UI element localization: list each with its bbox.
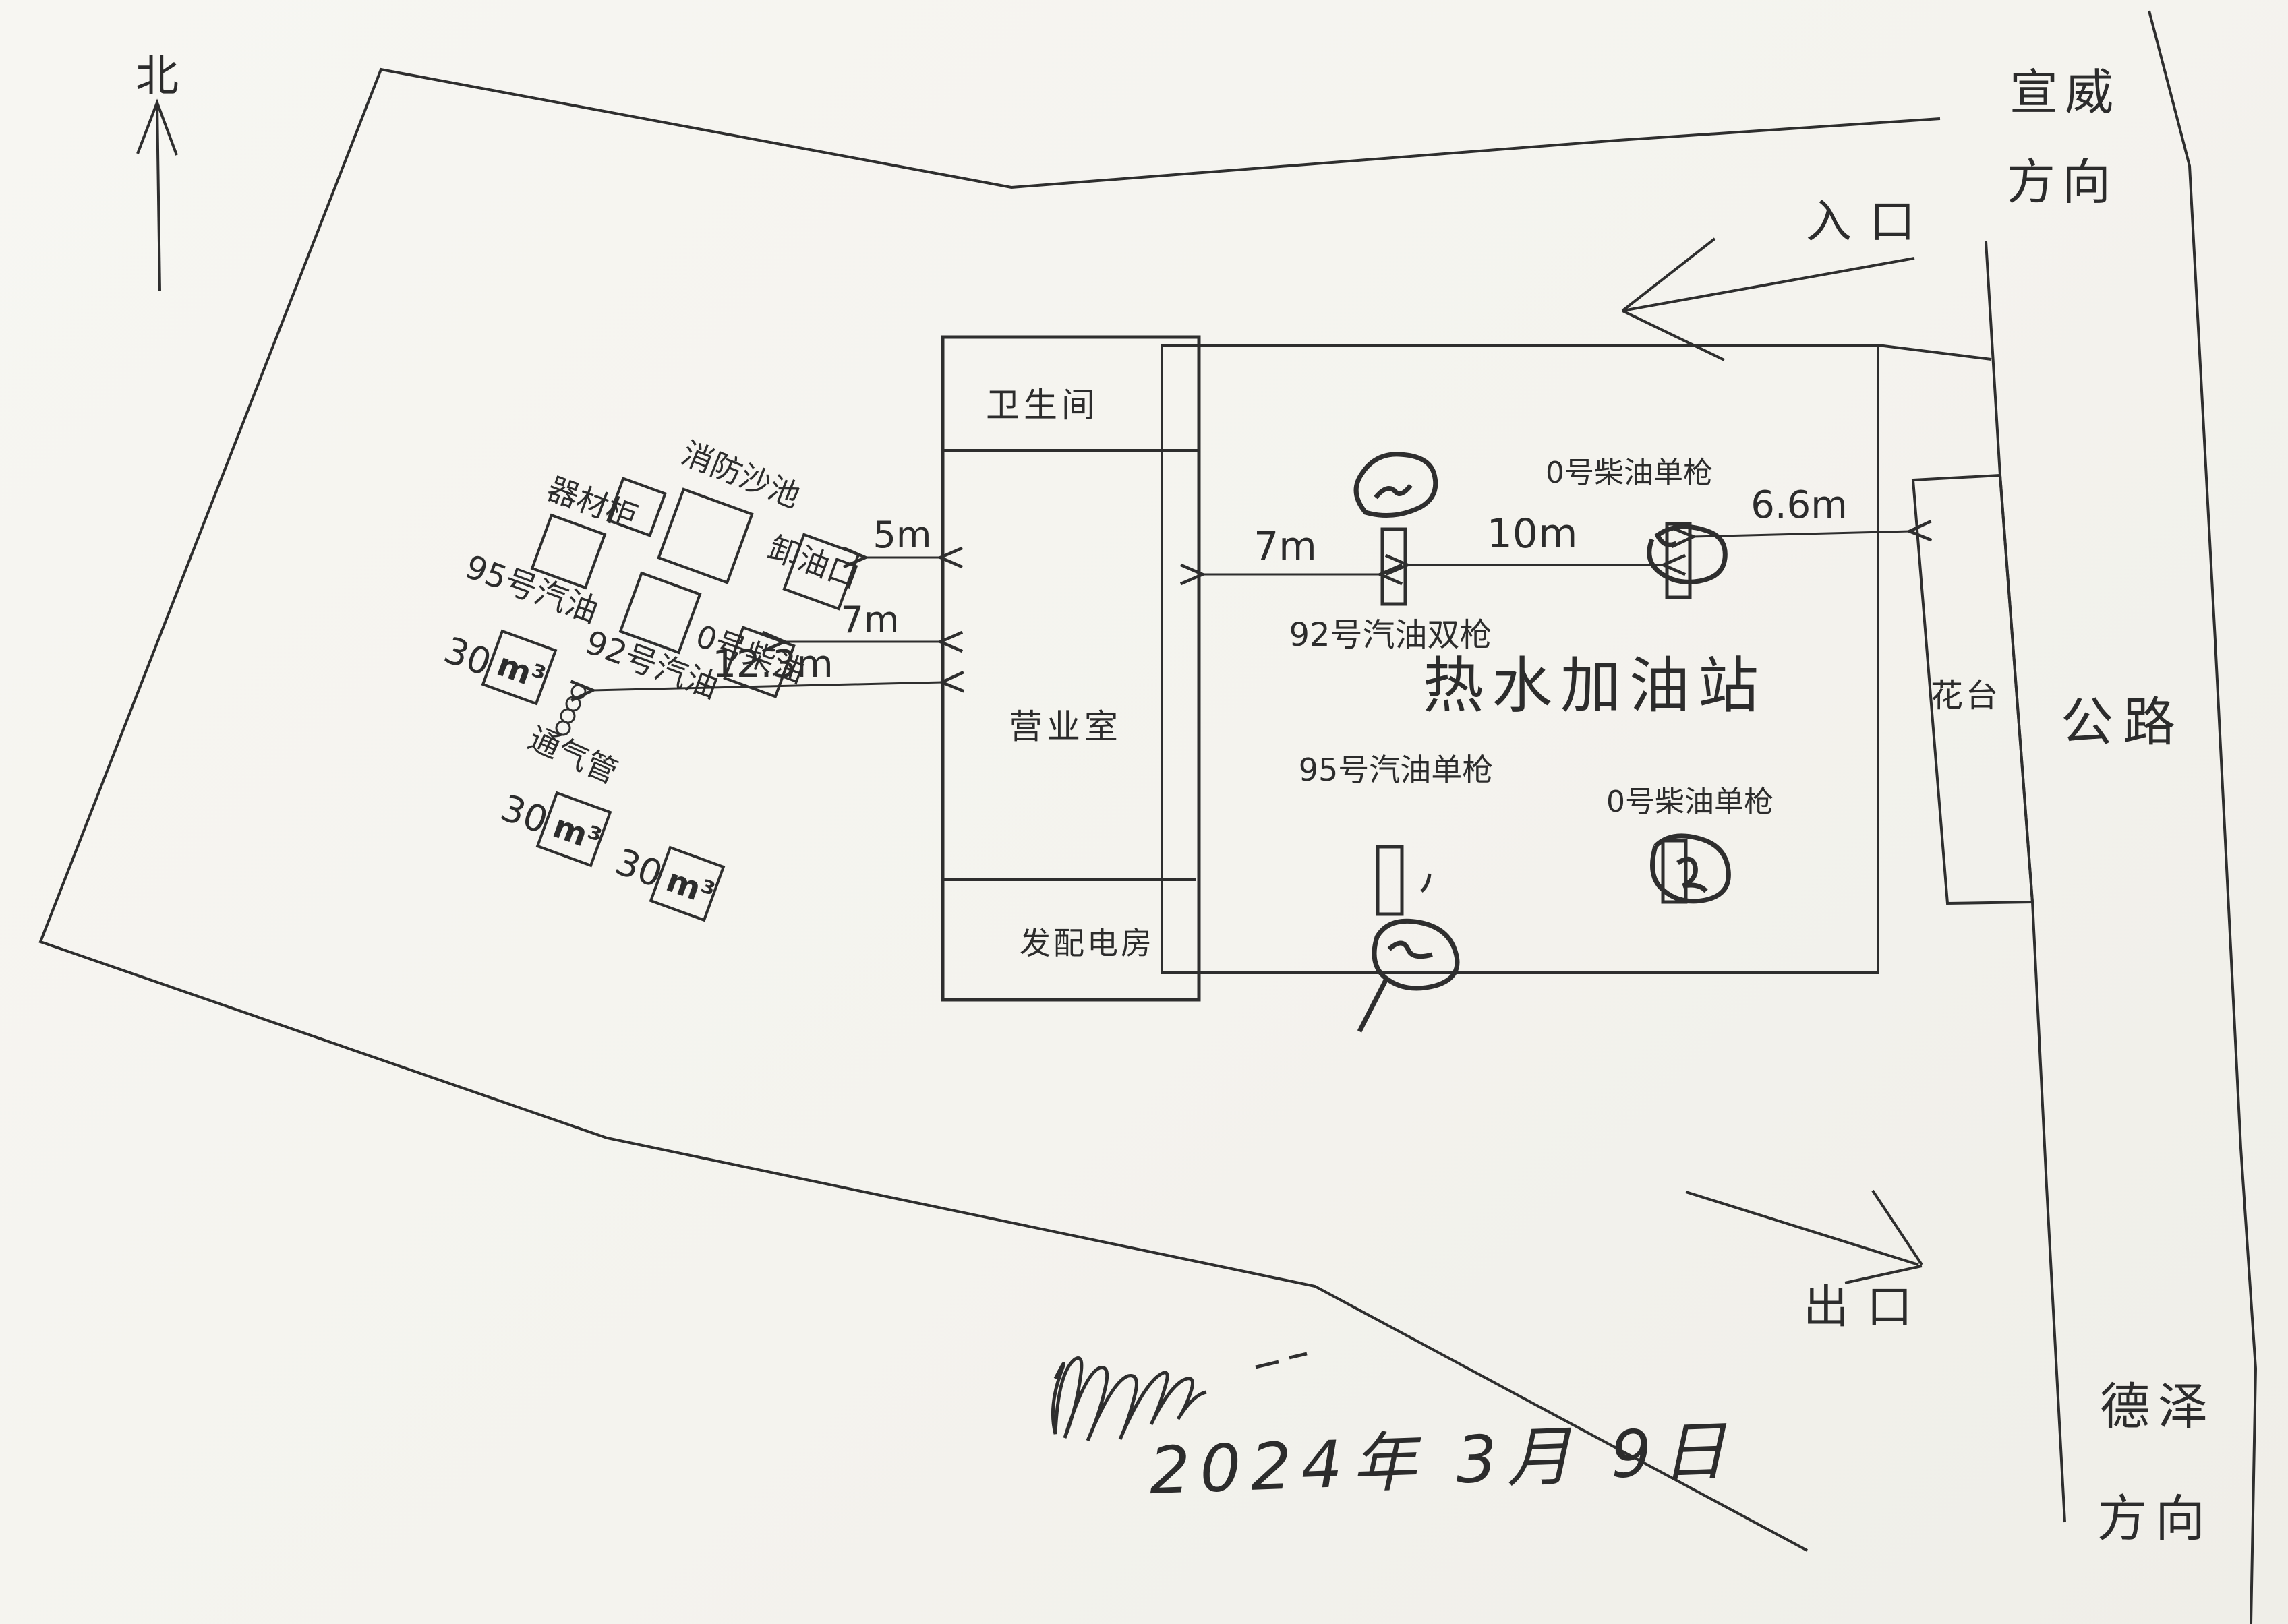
north-arrow-shaft bbox=[157, 102, 160, 291]
gasoline-95-label: 95号汽油 bbox=[461, 548, 604, 631]
station-title: 热水加油站 bbox=[1423, 651, 1767, 721]
vent-pipe-label: 通气管 bbox=[523, 719, 623, 790]
direction-deze: 德泽 方向 bbox=[2097, 1378, 2216, 1548]
tank-30m3-3: 30 m³ bbox=[610, 840, 723, 920]
deze-label: 德泽 bbox=[2100, 1378, 2216, 1436]
xuanwei-direction-label: 方向 bbox=[2007, 154, 2117, 210]
tank-1-num: 30 bbox=[438, 628, 496, 684]
date-text: 2024年 3月 9日 bbox=[1148, 1413, 1736, 1509]
entrance-arrow-barb-lower bbox=[1622, 311, 1724, 360]
exit-arrow-shaft bbox=[1686, 1192, 1918, 1265]
dispenser-95-label: 95号汽油单枪 bbox=[1299, 752, 1494, 788]
tank-2-num: 30 bbox=[495, 786, 553, 842]
dim-label-6-6m: 6.6m bbox=[1751, 483, 1848, 527]
toilet-label: 卫生间 bbox=[986, 386, 1099, 425]
dispenser-3-body bbox=[1378, 847, 1402, 914]
dimension-5m: 5m bbox=[864, 514, 941, 558]
entrance-arrow-barb-upper bbox=[1622, 239, 1715, 311]
flower-bed-label: 花台 bbox=[1931, 677, 2001, 715]
island-scribble-1 bbox=[1356, 454, 1436, 516]
tank-30m3-2: 30 m³ bbox=[495, 786, 610, 865]
site-plan-sketch: 公路 北 宣威 方向 入口 卫生间 营业室 发配电房 热水加油站 花台 bbox=[0, 0, 2288, 1624]
direction-xuanwei: 宣威 方向 bbox=[2007, 64, 2120, 210]
entrance-label: 入口 bbox=[1806, 196, 1933, 249]
dim-label-7m-right: 7m bbox=[1254, 523, 1316, 569]
island-scribble-2 bbox=[1649, 527, 1726, 582]
tank-30m3-1: 30 m³ bbox=[438, 628, 555, 703]
dispenser-0-diesel-bottom: 0号柴油单枪 bbox=[1606, 785, 1773, 902]
north-label: 北 bbox=[136, 52, 179, 102]
dispenser-2-body bbox=[1667, 524, 1690, 597]
dispenser-92-double: 92号汽油双枪 bbox=[1289, 454, 1492, 654]
tank-3-num: 30 bbox=[610, 840, 668, 896]
dispenser-92-label: 92号汽油双枪 bbox=[1289, 616, 1492, 654]
xuanwei-label: 宣威 bbox=[2010, 64, 2120, 121]
dim-label-5m: 5m bbox=[873, 514, 932, 556]
dispenser-95-single: 95号汽油单枪 bbox=[1299, 752, 1494, 1031]
flower-bed: 花台 bbox=[1913, 475, 2032, 903]
exit-label: 出口 bbox=[1803, 1281, 1930, 1334]
dimension-7m-right: 7m bbox=[1202, 523, 1381, 574]
entrance-arrow-shaft bbox=[1622, 258, 1914, 311]
signature-dashes bbox=[1256, 1354, 1307, 1367]
signature-scribble bbox=[1053, 1358, 1206, 1441]
canopy: 热水加油站 bbox=[1162, 345, 1991, 973]
office-label: 营业室 bbox=[1009, 707, 1122, 746]
dispenser-0-bottom-label: 0号柴油单枪 bbox=[1606, 785, 1773, 819]
highway-label: 公路 bbox=[2061, 692, 2185, 753]
exit-arrow: 出口 bbox=[1686, 1191, 1930, 1334]
dimension-7m-left: 7m bbox=[784, 599, 941, 642]
power-room-label: 发配电房 bbox=[1020, 925, 1154, 961]
road-left-edge bbox=[1986, 241, 2065, 1522]
island-scribble-3 bbox=[1359, 921, 1457, 1031]
fire-sand-pool-box bbox=[659, 489, 752, 582]
dimension-10m: 10m bbox=[1407, 510, 1664, 565]
signature-block: 2024年 3月 9日 bbox=[1053, 1354, 1736, 1509]
dim-label-10m: 10m bbox=[1487, 510, 1578, 558]
dim-label-7m-left: 7m bbox=[841, 599, 900, 641]
fire-sand-pool-label: 消防沙池 bbox=[676, 435, 805, 515]
dispenser-0-top-label: 0号柴油单枪 bbox=[1546, 456, 1713, 490]
deze-direction-label: 方向 bbox=[2097, 1490, 2213, 1548]
dispenser-1-body bbox=[1382, 529, 1405, 604]
tank-field: 器材柜 消防沙池 95号汽油 92号汽油 0号柴油 卸油口 通气管 30 m³ bbox=[438, 435, 863, 920]
compass-north: 北 bbox=[136, 52, 179, 291]
entrance-arrow: 入口 bbox=[1622, 196, 1933, 360]
canopy-top-extension bbox=[1878, 345, 1991, 359]
tick-mark bbox=[1421, 874, 1430, 891]
